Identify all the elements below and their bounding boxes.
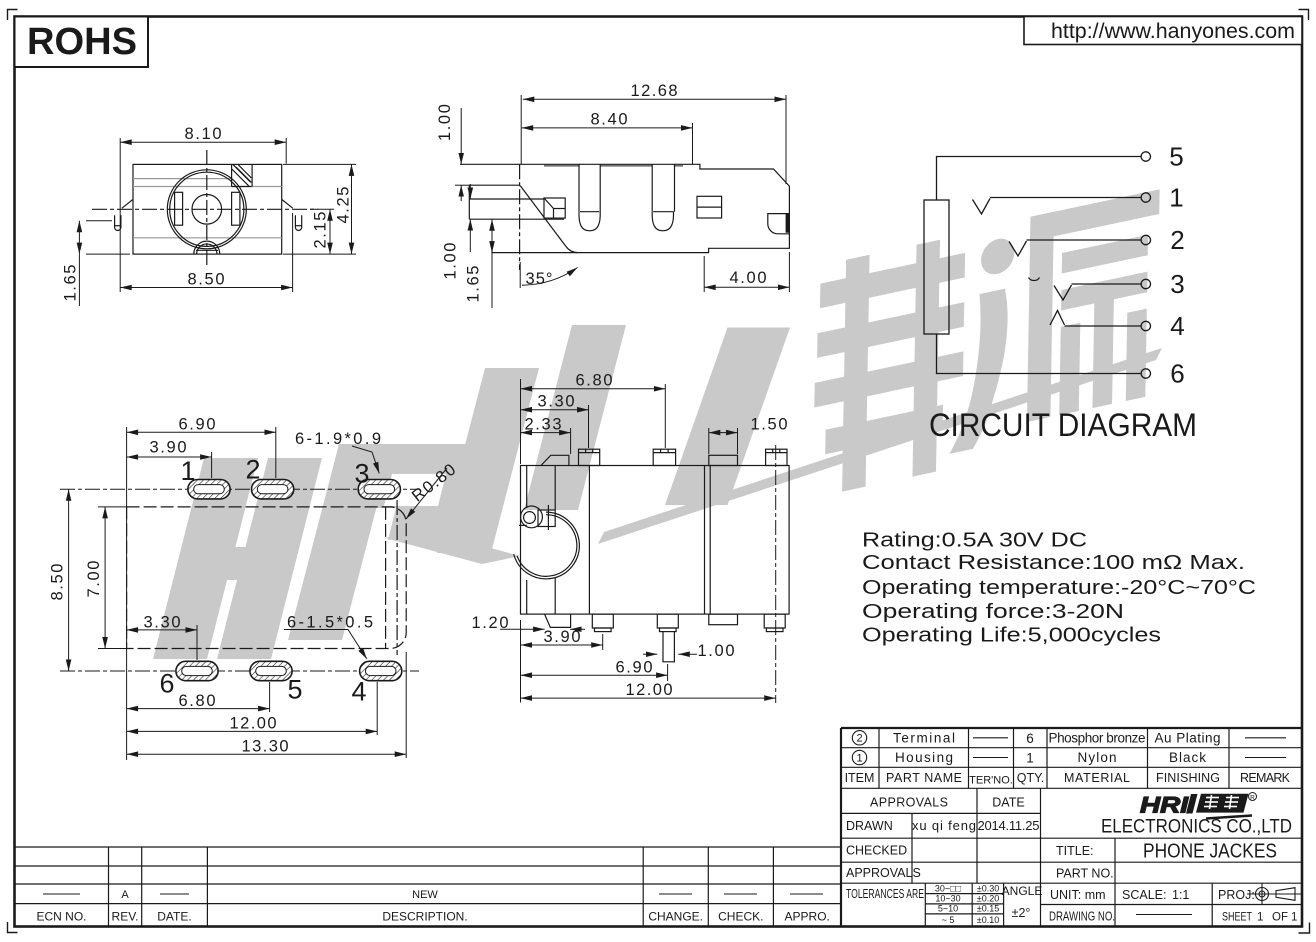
svg-text:REV.: REV. xyxy=(112,910,139,924)
svg-text:1.00: 1.00 xyxy=(698,642,735,660)
svg-text:CHECK.: CHECK. xyxy=(718,910,763,924)
svg-text:Contact Resistance:100 mΩ Max.: Contact Resistance:100 mΩ Max. xyxy=(862,552,1245,574)
svg-text:A: A xyxy=(121,889,129,901)
svg-text:±0.30: ±0.30 xyxy=(977,884,999,894)
svg-text:MATERIAL: MATERIAL xyxy=(1064,771,1130,785)
svg-text:Black: Black xyxy=(1169,750,1206,765)
svg-text:APPRO.: APPRO. xyxy=(785,910,830,924)
svg-text:REMARK: REMARK xyxy=(1240,771,1291,785)
svg-text:12.00: 12.00 xyxy=(626,681,673,699)
svg-text:3.90: 3.90 xyxy=(544,628,581,646)
svg-text:ELECTRONICS CO.,LTD: ELECTRONICS CO.,LTD xyxy=(1101,817,1292,838)
svg-text:1.65: 1.65 xyxy=(62,265,80,302)
svg-text:7.00: 7.00 xyxy=(85,561,103,598)
svg-text:3.30: 3.30 xyxy=(538,393,575,411)
svg-text:Terminal: Terminal xyxy=(893,731,955,746)
svg-text:1.20: 1.20 xyxy=(472,614,509,632)
svg-text:1.00: 1.00 xyxy=(442,243,460,280)
svg-text:DRAWN: DRAWN xyxy=(846,819,893,833)
svg-text:6.80: 6.80 xyxy=(179,692,216,710)
svg-text:12.68: 12.68 xyxy=(631,82,678,100)
svg-text:1.00: 1.00 xyxy=(436,104,454,141)
svg-text:2.33: 2.33 xyxy=(525,416,562,434)
svg-text:4.00: 4.00 xyxy=(730,269,767,287)
svg-text:NEW: NEW xyxy=(412,889,438,901)
svg-text:10~30: 10~30 xyxy=(935,894,960,904)
svg-text:Operating Life:5,000cycles: Operating Life:5,000cycles xyxy=(862,625,1161,647)
svg-text:Nylon: Nylon xyxy=(1078,750,1117,765)
svg-text:6.90: 6.90 xyxy=(179,416,216,434)
svg-text:6-1.5*0.5: 6-1.5*0.5 xyxy=(287,614,373,632)
svg-text:5~10: 5~10 xyxy=(938,904,958,914)
svg-text:±2°: ±2° xyxy=(1012,906,1031,920)
svg-text:xu qi feng: xu qi feng xyxy=(912,818,976,833)
svg-text:3.90: 3.90 xyxy=(150,439,187,457)
svg-text:2014.11.25: 2014.11.25 xyxy=(978,818,1040,833)
svg-text:~ 5: ~ 5 xyxy=(942,915,955,925)
svg-text:8.40: 8.40 xyxy=(591,111,628,129)
svg-text:1: 1 xyxy=(856,752,862,764)
svg-text:6: 6 xyxy=(159,669,174,699)
svg-text:CHECKED: CHECKED xyxy=(846,844,907,858)
svg-text:SCALE:: SCALE: xyxy=(1122,888,1166,902)
svg-text:ECN NO.: ECN NO. xyxy=(36,910,86,924)
svg-text:APPROVALS: APPROVALS xyxy=(870,796,948,810)
svg-text:6-1.9*0.9: 6-1.9*0.9 xyxy=(295,430,381,448)
svg-text:Phosphor bronze: Phosphor bronze xyxy=(1049,731,1146,746)
svg-text:4: 4 xyxy=(1170,311,1184,341)
svg-text:3: 3 xyxy=(354,459,369,489)
svg-text:±0.15: ±0.15 xyxy=(977,904,999,914)
svg-text:1: 1 xyxy=(180,456,195,486)
svg-text:13.30: 13.30 xyxy=(242,738,289,756)
svg-text:8.50: 8.50 xyxy=(188,271,225,289)
svg-text:FINISHING: FINISHING xyxy=(1156,771,1220,785)
svg-text:PHONE JACKES: PHONE JACKES xyxy=(1143,841,1277,863)
svg-text:1: 1 xyxy=(1026,751,1034,766)
svg-text:30~□□: 30~□□ xyxy=(935,884,962,894)
svg-text:5: 5 xyxy=(287,675,302,705)
svg-text:DATE.: DATE. xyxy=(157,910,191,924)
svg-text:DESCRIPTION.: DESCRIPTION. xyxy=(382,910,467,924)
svg-text:PART NO.: PART NO. xyxy=(1056,867,1114,881)
svg-text:ANGLE: ANGLE xyxy=(1002,884,1043,898)
svg-text:APPROVALS: APPROVALS xyxy=(846,866,921,880)
svg-text:2: 2 xyxy=(245,455,260,485)
svg-text:8.10: 8.10 xyxy=(185,125,222,143)
svg-text:SHEET: SHEET xyxy=(1222,912,1252,924)
svg-text:35°: 35° xyxy=(526,270,553,288)
svg-text:ROHS: ROHS xyxy=(27,21,137,63)
svg-text:QTY.: QTY. xyxy=(1017,771,1045,785)
svg-text:8.50: 8.50 xyxy=(49,564,67,601)
svg-text:1.50: 1.50 xyxy=(751,416,788,434)
svg-text:ITEM: ITEM xyxy=(845,771,875,785)
svg-text:6.80: 6.80 xyxy=(576,372,613,390)
svg-text:HRI: HRI xyxy=(1140,793,1189,818)
svg-text:PROJ:: PROJ: xyxy=(1218,888,1255,902)
svg-text:CIRCUIT DIAGRAM: CIRCUIT DIAGRAM xyxy=(929,407,1197,443)
svg-text:1: 1 xyxy=(1257,912,1263,924)
svg-text:TOLERANCES ARE: TOLERANCES ARE xyxy=(846,887,924,901)
svg-text:TER'NO.: TER'NO. xyxy=(969,775,1013,787)
svg-text:12.00: 12.00 xyxy=(230,715,277,733)
svg-text:OF: OF xyxy=(1272,912,1288,924)
svg-text:Operating temperature:-20°C~70: Operating temperature:-20°C~70°C xyxy=(862,577,1256,599)
svg-text:±0.20: ±0.20 xyxy=(977,894,999,904)
svg-text:2: 2 xyxy=(1170,225,1184,255)
svg-text:TITLE:: TITLE: xyxy=(1056,844,1094,858)
svg-text:3.30: 3.30 xyxy=(144,614,181,632)
svg-text:CHANGE.: CHANGE. xyxy=(648,910,703,924)
svg-text:1: 1 xyxy=(1291,912,1297,924)
svg-text:Rating:0.5A 30V DC: Rating:0.5A 30V DC xyxy=(862,530,1087,552)
svg-text:5: 5 xyxy=(1169,142,1183,172)
svg-text:http://www.hanyones.com: http://www.hanyones.com xyxy=(1051,20,1295,43)
svg-text:DATE: DATE xyxy=(992,796,1024,810)
svg-text:UNIT: mm: UNIT: mm xyxy=(1050,888,1106,902)
svg-text:3: 3 xyxy=(1170,269,1184,299)
svg-text:PART NAME: PART NAME xyxy=(886,771,962,785)
svg-text:±0.10: ±0.10 xyxy=(977,915,999,925)
svg-text:6: 6 xyxy=(1026,731,1034,746)
svg-text:R: R xyxy=(1250,795,1255,802)
svg-text:1.65: 1.65 xyxy=(465,266,483,303)
svg-text:1: 1 xyxy=(1169,183,1183,213)
svg-text:4: 4 xyxy=(351,677,366,707)
svg-text:DRAWING NO.: DRAWING NO. xyxy=(1049,910,1115,924)
svg-text:4.25: 4.25 xyxy=(335,187,353,224)
svg-text:1:1: 1:1 xyxy=(1172,888,1189,902)
svg-text:2: 2 xyxy=(856,733,862,745)
svg-text:6: 6 xyxy=(1170,359,1184,389)
svg-text:2.15: 2.15 xyxy=(312,212,330,249)
svg-text:6.90: 6.90 xyxy=(616,658,653,676)
svg-text:Operating force:3-20N: Operating force:3-20N xyxy=(862,601,1124,623)
svg-text:Au Plating: Au Plating xyxy=(1155,731,1221,746)
